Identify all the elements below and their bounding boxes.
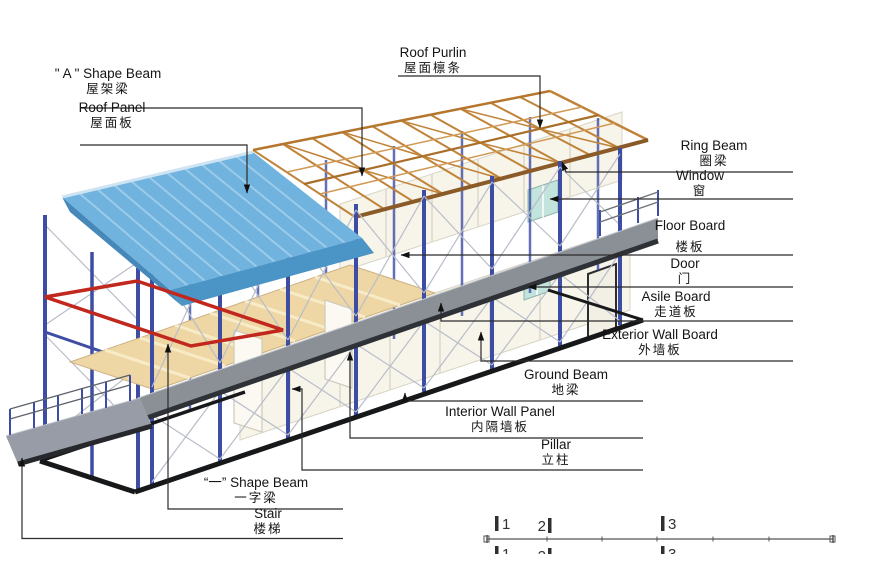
label-en: Asile Board [641,289,710,305]
label-exterior-wall-board: Exterior Wall Board 外墙板 [602,327,718,357]
label-en: Door [670,256,699,272]
ruler-mark: 1 [502,546,510,563]
ruler-scale-bar [484,535,835,543]
label-zh: 地梁 [524,383,608,397]
label-zh: 楼梯 [253,522,282,536]
label-ring-beam: Ring Beam 圈梁 [681,138,748,168]
label-en: Interior Wall Panel [445,404,555,420]
label-pillar: Pillar 立柱 [541,437,571,467]
label-window: Window 窗 [676,168,724,198]
label-en: Ring Beam [681,138,748,154]
label-zh: 内隔墙板 [445,420,555,434]
label-en: Roof Purlin [400,45,467,61]
label-zh: 圈梁 [681,154,748,168]
label-zh: 门 [670,272,699,286]
label-en: “一” Shape Beam [204,475,308,491]
label-floor-board: Floor Board 楼板 [655,218,726,254]
label-en: Floor Board [655,218,726,234]
label-zh: 窗 [676,184,724,198]
label-en: Window [676,168,724,184]
label-zh: 一字梁 [204,491,308,505]
label-door: Door 门 [670,256,699,286]
label-zh: 屋架梁 [55,82,161,96]
label-roof-purlin: Roof Purlin 屋面檩条 [400,45,467,75]
label-en: Roof Panel [79,100,146,116]
label-en: Pillar [541,437,571,453]
label-ground-beam: Ground Beam 地梁 [524,367,608,397]
ruler-row-2: 1 2 3 [495,546,676,565]
ruler-mark: 2 [538,518,546,535]
scale-ruler: 1 2 3 1 2 3 [484,516,835,565]
label-zh: 立柱 [541,453,571,467]
label-en: Exterior Wall Board [602,327,718,343]
label-zh: 外墙板 [602,343,718,357]
label-en: Ground Beam [524,367,608,383]
label-one-shape-beam: “一” Shape Beam 一字梁 [204,475,308,505]
ruler-mark: 3 [668,546,676,563]
diagram-page: 1 2 3 1 2 3 Roof Purlin [0,0,877,568]
stair-ramp [6,375,152,464]
label-en: Stair [253,506,282,522]
label-interior-wall-panel: Interior Wall Panel 内隔墙板 [445,404,555,434]
label-zh: 屋面檩条 [400,61,467,75]
label-zh: 楼板 [655,240,726,254]
ruler-mark: 2 [538,548,546,565]
label-a-shape-beam: " A " Shape Beam 屋架梁 [55,66,161,96]
label-en: " A " Shape Beam [55,66,161,82]
ruler-row-1: 1 2 3 [495,516,676,535]
ruler-mark: 3 [668,516,676,533]
label-zh: 走道板 [641,305,710,319]
ruler-mark: 1 [502,516,510,533]
label-zh: 屋面板 [79,116,146,130]
label-roof-panel: Roof Panel 屋面板 [79,100,146,130]
label-stair: Stair 楼梯 [253,506,282,536]
label-asile-board: Asile Board 走道板 [641,289,710,319]
